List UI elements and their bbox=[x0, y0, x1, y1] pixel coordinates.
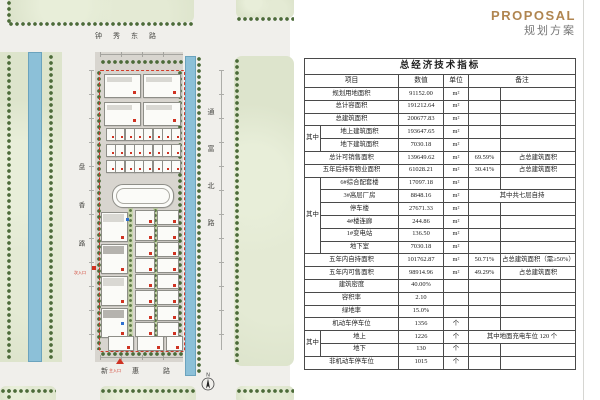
item-cell: 五年内自持面积 bbox=[305, 254, 399, 267]
unit-marker bbox=[121, 168, 123, 170]
building-roof-detail bbox=[103, 214, 124, 222]
indicator-table: 总经济技术指标 项目 数值 单位 备注 规划用地面积91152.00m²总计容面… bbox=[304, 58, 576, 370]
value-cell: 244.86 bbox=[399, 215, 444, 228]
unit-marker bbox=[177, 152, 179, 154]
unit-marker bbox=[149, 316, 152, 319]
unit-marker bbox=[173, 284, 176, 287]
unit-cell bbox=[444, 305, 469, 318]
value-cell: 191212.64 bbox=[399, 100, 444, 113]
item-cell: 1#变电站 bbox=[321, 228, 399, 241]
value-cell: 91152.00 bbox=[399, 88, 444, 101]
canal-east bbox=[185, 56, 196, 376]
building-roof-detail bbox=[146, 77, 172, 82]
unit-building bbox=[157, 306, 179, 321]
table-row: 停车楼27671.33m² bbox=[305, 203, 576, 216]
side-entrance-label: 次入口 bbox=[74, 271, 86, 275]
unit-marker bbox=[130, 136, 132, 138]
item-cell: 地下 bbox=[321, 343, 399, 356]
value-cell: 15.0% bbox=[399, 305, 444, 318]
unit-marker bbox=[139, 168, 141, 170]
table-row: 五年后持有物业面积61028.21m²30.41%占总建筑面积 bbox=[305, 164, 576, 177]
pct-cell bbox=[469, 177, 501, 190]
unit-building bbox=[171, 144, 181, 157]
unit-marker bbox=[177, 168, 179, 170]
tree-row bbox=[0, 388, 56, 394]
canal-west bbox=[28, 52, 42, 362]
value-cell: 200677.83 bbox=[399, 113, 444, 126]
pct-cell bbox=[469, 292, 501, 305]
value-cell: 8848.16 bbox=[399, 190, 444, 203]
building-roof-detail bbox=[103, 246, 124, 254]
page: 钟秀东路 通富北路 盘香路 新惠路 主入口 次入口 N PROPOSAL 规划方… bbox=[0, 0, 600, 400]
table-row: 地下130个 bbox=[305, 343, 576, 356]
side-entrance-marker bbox=[92, 266, 96, 270]
table-row: 其中地上建筑面积193647.65m² bbox=[305, 126, 576, 139]
value-cell: 2.10 bbox=[399, 292, 444, 305]
unit-marker bbox=[167, 152, 169, 154]
dimension-line bbox=[219, 70, 224, 350]
col-header-unit: 单位 bbox=[444, 75, 469, 88]
unit-cell: m² bbox=[444, 164, 469, 177]
unit-marker bbox=[158, 152, 160, 154]
unit-building bbox=[135, 290, 155, 305]
value-cell: 40.00% bbox=[399, 279, 444, 292]
unit-cell: m² bbox=[444, 228, 469, 241]
note-cell: 占总建筑面积（需≥50%） bbox=[501, 254, 576, 267]
note-cell bbox=[501, 215, 576, 228]
unit-marker bbox=[112, 168, 114, 170]
pct-cell bbox=[469, 203, 501, 216]
item-cell: 规划用地面积 bbox=[305, 88, 399, 101]
unit-building bbox=[157, 242, 179, 257]
item-cell: 绿地率 bbox=[305, 305, 399, 318]
building-marker bbox=[157, 346, 160, 349]
building-marker bbox=[127, 346, 130, 349]
tree-row bbox=[6, 0, 13, 24]
unit-building bbox=[171, 160, 181, 173]
item-cell: 五年后持有物业面积 bbox=[305, 164, 399, 177]
table-row: 规划用地面积91152.00m² bbox=[305, 88, 576, 101]
unit-marker bbox=[177, 136, 179, 138]
pct-cell bbox=[469, 356, 501, 369]
indicator-rows: 规划用地面积91152.00m²总计容面积191212.64m²总建筑面积200… bbox=[305, 88, 576, 370]
unit-building bbox=[135, 210, 155, 225]
unit-cell: m² bbox=[444, 215, 469, 228]
table-row: 3#高层厂房8848.16m²其中共七层自持 bbox=[305, 190, 576, 203]
north-arrow: N bbox=[199, 371, 217, 393]
note-cell bbox=[501, 279, 576, 292]
table-row: 五年内自持面积101762.87m²50.71%占总建筑面积（需≥50%） bbox=[305, 254, 576, 267]
indicator-table-wrap: 总经济技术指标 项目 数值 单位 备注 规划用地面积91152.00m²总计容面… bbox=[304, 58, 575, 370]
note-cell: 占总建筑面积 bbox=[501, 151, 576, 164]
unit-building bbox=[157, 258, 179, 273]
note-cell: 其中地面充电车位 120 个 bbox=[469, 331, 576, 344]
col-header-item: 项目 bbox=[305, 75, 399, 88]
building-marker bbox=[133, 119, 136, 122]
landscape-strip bbox=[128, 208, 133, 336]
item-cell: 3#高层厂房 bbox=[321, 190, 399, 203]
building bbox=[137, 336, 164, 351]
table-row: 地下室7030.18m² bbox=[305, 241, 576, 254]
item-cell: 地下建筑面积 bbox=[321, 139, 399, 152]
pct-cell bbox=[469, 215, 501, 228]
value-cell: 1015 bbox=[399, 356, 444, 369]
table-row: 其中6#综合配套楼17097.18m² bbox=[305, 177, 576, 190]
unit-cell: m² bbox=[444, 113, 469, 126]
page-edge-line bbox=[583, 0, 584, 400]
dimension-line bbox=[100, 52, 183, 57]
unit-marker bbox=[149, 300, 152, 303]
note-cell: 占总建筑面积 bbox=[501, 164, 576, 177]
parking-roof-detail bbox=[116, 188, 170, 204]
note-cell bbox=[501, 203, 576, 216]
note-cell bbox=[501, 318, 576, 331]
table-row: 建筑密度40.00% bbox=[305, 279, 576, 292]
table-row: 地下建筑面积7030.18m² bbox=[305, 139, 576, 152]
item-cell: 总计可销售面积 bbox=[305, 151, 399, 164]
col-header-note: 备注 bbox=[469, 75, 576, 88]
unit-cell: m² bbox=[444, 151, 469, 164]
value-cell: 1226 bbox=[399, 331, 444, 344]
group-cell: 其中 bbox=[305, 177, 321, 254]
pct-cell bbox=[469, 343, 501, 356]
value-cell: 7030.18 bbox=[399, 241, 444, 254]
pct-cell bbox=[469, 318, 501, 331]
unit-marker bbox=[121, 136, 123, 138]
park-block bbox=[234, 56, 294, 366]
item-cell: 机动车停车位 bbox=[305, 318, 399, 331]
unit-marker bbox=[121, 152, 123, 154]
building-roof-detail bbox=[107, 77, 132, 82]
unit-marker bbox=[112, 136, 114, 138]
value-cell: 17097.18 bbox=[399, 177, 444, 190]
item-cell: 容积率 bbox=[305, 292, 399, 305]
unit-marker bbox=[149, 152, 151, 154]
building-marker bbox=[121, 332, 124, 335]
value-cell: 130 bbox=[399, 343, 444, 356]
unit-building bbox=[135, 274, 155, 289]
unit-marker bbox=[158, 136, 160, 138]
dimension-line bbox=[100, 355, 183, 360]
unit-building bbox=[135, 242, 155, 257]
road-label-north: 钟秀东路 bbox=[95, 31, 167, 41]
item-cell: 停车楼 bbox=[321, 203, 399, 216]
unit-marker bbox=[167, 136, 169, 138]
note-cell: 其中共七层自持 bbox=[469, 190, 576, 203]
building-roof-detail bbox=[146, 105, 172, 110]
value-cell: 1356 bbox=[399, 318, 444, 331]
unit-marker bbox=[139, 136, 141, 138]
unit-marker bbox=[112, 152, 114, 154]
unit-marker bbox=[173, 316, 176, 319]
unit-marker bbox=[149, 284, 152, 287]
unit-cell: m² bbox=[444, 88, 469, 101]
building bbox=[108, 336, 134, 351]
unit-cell: m² bbox=[444, 100, 469, 113]
value-cell: 27671.33 bbox=[399, 203, 444, 216]
note-cell bbox=[501, 292, 576, 305]
note-cell bbox=[501, 305, 576, 318]
unit-marker bbox=[130, 152, 132, 154]
building-marker bbox=[121, 300, 124, 303]
value-cell: 136.50 bbox=[399, 228, 444, 241]
main-entrance-marker bbox=[116, 358, 124, 364]
item-cell: 建筑密度 bbox=[305, 279, 399, 292]
site-plan bbox=[0, 0, 290, 400]
tree-row bbox=[196, 56, 202, 374]
item-cell: 4#楼连廊 bbox=[321, 215, 399, 228]
tree-row bbox=[8, 21, 194, 28]
unit-cell: m² bbox=[444, 139, 469, 152]
note-cell bbox=[501, 126, 576, 139]
unit-marker bbox=[149, 332, 152, 335]
item-cell: 总建筑面积 bbox=[305, 113, 399, 126]
value-cell: 7030.18 bbox=[399, 139, 444, 152]
unit-marker bbox=[173, 252, 176, 255]
table-title-row: 总经济技术指标 bbox=[305, 59, 576, 75]
unit-cell: m² bbox=[444, 177, 469, 190]
value-cell: 61028.21 bbox=[399, 164, 444, 177]
pct-cell bbox=[469, 241, 501, 254]
table-row: 4#楼连廊244.86m² bbox=[305, 215, 576, 228]
utility-marker bbox=[126, 218, 129, 221]
unit-building bbox=[157, 322, 179, 337]
unit-building bbox=[135, 306, 155, 321]
building-marker bbox=[133, 91, 136, 94]
title-block: PROPOSAL 规划方案 bbox=[491, 8, 576, 39]
building-marker bbox=[173, 91, 176, 94]
item-cell: 五年内可售面积 bbox=[305, 267, 399, 280]
unit-marker bbox=[149, 252, 152, 255]
unit-cell: m² bbox=[444, 267, 469, 280]
tree-row bbox=[236, 388, 294, 394]
note-cell bbox=[501, 241, 576, 254]
dimension-line bbox=[89, 70, 94, 350]
unit-cell: m² bbox=[444, 190, 469, 203]
unit-marker bbox=[139, 152, 141, 154]
table-row: 五年内可售面积98914.96m²49.29%占总建筑面积 bbox=[305, 267, 576, 280]
main-entrance-label: 主入口 bbox=[109, 369, 121, 373]
unit-marker bbox=[173, 268, 176, 271]
pct-cell: 50.71% bbox=[469, 254, 501, 267]
pct-cell bbox=[469, 279, 501, 292]
park-block bbox=[8, 0, 194, 22]
unit-building bbox=[157, 226, 179, 241]
building-roof-detail bbox=[107, 105, 132, 110]
building-marker bbox=[176, 346, 179, 349]
tree-row bbox=[100, 388, 196, 394]
unit-cell bbox=[444, 279, 469, 292]
note-cell bbox=[501, 177, 576, 190]
north-arrow-n: N bbox=[206, 373, 210, 379]
item-cell: 地上 bbox=[321, 331, 399, 344]
table-row: 总建筑面积200677.83m² bbox=[305, 113, 576, 126]
unit-building bbox=[171, 128, 181, 141]
unit-building bbox=[157, 274, 179, 289]
unit-marker bbox=[149, 168, 151, 170]
unit-cell: m² bbox=[444, 254, 469, 267]
building-marker bbox=[121, 236, 124, 239]
group-cell: 其中 bbox=[305, 331, 321, 357]
unit-marker bbox=[173, 220, 176, 223]
table-row: 总计可销售面积139649.62m²69.59%占总建筑面积 bbox=[305, 151, 576, 164]
table-header-row: 项目 数值 单位 备注 bbox=[305, 75, 576, 88]
road-label-west: 盘香路 bbox=[75, 163, 85, 279]
note-cell bbox=[501, 139, 576, 152]
utility-marker bbox=[121, 322, 124, 325]
group-cell: 其中 bbox=[305, 126, 321, 152]
tree-row bbox=[100, 59, 183, 66]
unit-building bbox=[157, 290, 179, 305]
table-row: 1#变电站136.50m² bbox=[305, 228, 576, 241]
unit-marker bbox=[167, 168, 169, 170]
unit-cell: m² bbox=[444, 126, 469, 139]
pct-cell bbox=[469, 100, 501, 113]
road-label-east: 通富北路 bbox=[206, 108, 216, 256]
pct-cell bbox=[469, 139, 501, 152]
unit-building bbox=[135, 322, 155, 337]
table-row: 容积率2.10 bbox=[305, 292, 576, 305]
building-marker bbox=[173, 119, 176, 122]
pct-cell bbox=[469, 228, 501, 241]
pct-cell bbox=[469, 305, 501, 318]
table-row: 机动车停车位1356个 bbox=[305, 318, 576, 331]
pct-cell: 49.29% bbox=[469, 267, 501, 280]
table-row: 总计容面积191212.64m² bbox=[305, 100, 576, 113]
page-title-en: PROPOSAL bbox=[491, 8, 576, 24]
tree-row bbox=[6, 54, 13, 360]
value-cell: 101762.87 bbox=[399, 254, 444, 267]
unit-cell: 个 bbox=[444, 356, 469, 369]
tree-row bbox=[234, 58, 241, 362]
item-cell: 6#综合配套楼 bbox=[321, 177, 399, 190]
table-title: 总经济技术指标 bbox=[305, 59, 576, 75]
unit-marker bbox=[149, 236, 152, 239]
unit-building bbox=[157, 210, 179, 225]
tree-row bbox=[236, 16, 294, 23]
item-cell: 地下室 bbox=[321, 241, 399, 254]
unit-cell: 个 bbox=[444, 343, 469, 356]
building-roof-detail bbox=[103, 310, 124, 318]
note-cell bbox=[501, 88, 576, 101]
table-row: 非机动车停车位1015个 bbox=[305, 356, 576, 369]
note-cell bbox=[501, 113, 576, 126]
unit-marker bbox=[158, 168, 160, 170]
table-row: 绿地率15.0% bbox=[305, 305, 576, 318]
value-cell: 98914.96 bbox=[399, 267, 444, 280]
unit-marker bbox=[173, 300, 176, 303]
tree-row bbox=[48, 54, 55, 360]
unit-marker bbox=[173, 332, 176, 335]
value-cell: 193647.65 bbox=[399, 126, 444, 139]
unit-marker bbox=[149, 268, 152, 271]
unit-marker bbox=[149, 220, 152, 223]
building-roof-detail bbox=[103, 278, 124, 286]
building bbox=[166, 336, 183, 351]
value-cell: 139649.62 bbox=[399, 151, 444, 164]
table-row: 其中地上1226个其中地面充电车位 120 个 bbox=[305, 331, 576, 344]
unit-marker bbox=[149, 136, 151, 138]
unit-cell bbox=[444, 292, 469, 305]
unit-marker bbox=[130, 168, 132, 170]
unit-building bbox=[135, 258, 155, 273]
building-marker bbox=[121, 268, 124, 271]
unit-cell: 个 bbox=[444, 318, 469, 331]
unit-cell: m² bbox=[444, 241, 469, 254]
pct-cell: 69.59% bbox=[469, 151, 501, 164]
note-cell bbox=[501, 356, 576, 369]
unit-cell: 个 bbox=[444, 331, 469, 344]
item-cell: 总计容面积 bbox=[305, 100, 399, 113]
col-header-value: 数值 bbox=[399, 75, 444, 88]
pct-cell: 30.41% bbox=[469, 164, 501, 177]
note-cell bbox=[501, 228, 576, 241]
note-cell: 占总建筑面积 bbox=[501, 267, 576, 280]
item-cell: 非机动车停车位 bbox=[305, 356, 399, 369]
unit-building bbox=[135, 226, 155, 241]
note-cell bbox=[501, 100, 576, 113]
pct-cell bbox=[469, 88, 501, 101]
unit-cell: m² bbox=[444, 203, 469, 216]
note-cell bbox=[501, 343, 576, 356]
page-title-zh: 规划方案 bbox=[491, 24, 576, 39]
item-cell: 地上建筑面积 bbox=[321, 126, 399, 139]
pct-cell bbox=[469, 126, 501, 139]
unit-marker bbox=[173, 236, 176, 239]
pct-cell bbox=[469, 113, 501, 126]
